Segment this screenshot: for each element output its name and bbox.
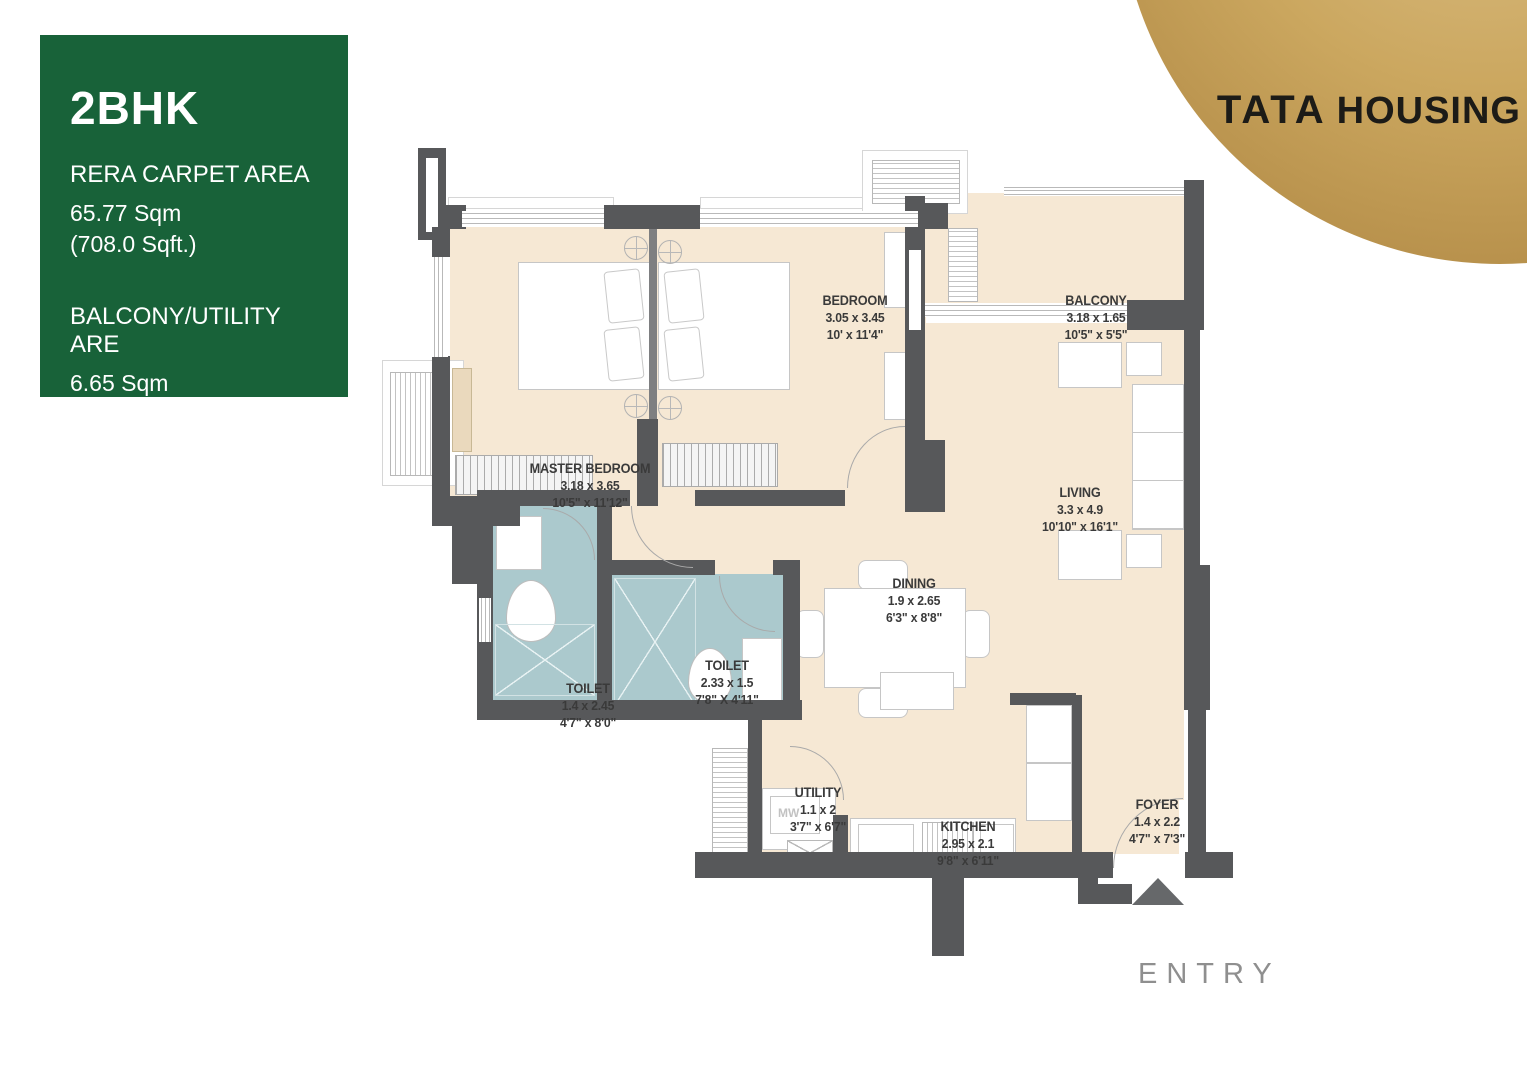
armchair xyxy=(1058,342,1122,388)
room-label-master-bedroom: MASTER BEDROOM 3.18 x 3.65 10'5" x 11'12… xyxy=(510,460,670,511)
window-sill xyxy=(448,197,614,209)
room-label-bedroom: BEDROOM 3.05 x 3.45 10' x 11'4" xyxy=(775,292,935,343)
wall-segment xyxy=(649,229,657,421)
ceiling-fan-icon xyxy=(624,236,648,260)
window-strip xyxy=(479,598,491,642)
pillow xyxy=(603,326,644,381)
room-label-living: LIVING 3.3 x 4.9 10'10" x 16'1" xyxy=(1000,484,1160,535)
entry-arrow-icon xyxy=(1132,878,1184,905)
window-strip xyxy=(462,211,604,227)
kitchen-cabinet xyxy=(1026,763,1072,821)
side-table xyxy=(1126,534,1162,568)
brand-housing-wordmark: HOUSING xyxy=(1337,90,1521,132)
plan-type-title: 2BHK xyxy=(70,81,328,135)
room-label-toilet-2: TOILET 2.33 x 1.5 7'8" X 4'11" xyxy=(647,657,807,708)
bedroom-wardrobe xyxy=(662,443,778,487)
side-table xyxy=(1126,342,1162,376)
ceiling-fan-icon xyxy=(658,396,682,420)
wall-segment xyxy=(432,227,450,257)
pillow xyxy=(603,268,644,323)
balcony-area-sqm: 6.65 Sqm xyxy=(70,369,328,398)
balcony-area-label: BALCONY/UTILITY ARE xyxy=(70,303,328,359)
wall-segment xyxy=(612,560,715,575)
window-strip xyxy=(432,257,448,357)
balcony-area-sqft: (72.0 Sqft.) xyxy=(70,399,328,428)
wall-segment xyxy=(432,356,450,504)
ceiling-fan-icon xyxy=(658,240,682,264)
room-label-foyer: FOYER 1.4 x 2.2 4'7" x 7'3" xyxy=(1077,796,1237,847)
carpet-area-sqm: 65.77 Sqm xyxy=(70,199,328,228)
brand-tata-wordmark: TATA xyxy=(1217,88,1327,132)
dresser xyxy=(452,368,472,452)
pillow xyxy=(663,268,704,323)
room-label-dining: DINING 1.9 x 2.65 6'3" x 8'8" xyxy=(834,575,994,626)
brand-logo: TATAHOUSING xyxy=(1217,88,1521,133)
room-label-toilet-1: TOILET 1.4 x 2.45 4'7" x 8'0" xyxy=(508,680,668,731)
room-label-kitchen: KITCHEN 2.95 x 2.1 9'8" x 6'11" xyxy=(888,818,1048,869)
wall-segment xyxy=(1184,565,1210,710)
wall-segment xyxy=(1098,884,1132,904)
room-label-balcony: BALCONY 3.18 x 1.65 10'5" x 5'5" xyxy=(1016,292,1176,343)
wall-segment xyxy=(1185,852,1233,878)
entry-label: ENTRY xyxy=(1138,958,1281,991)
carpet-area-label: RERA CARPET AREA xyxy=(70,161,328,189)
wall-segment xyxy=(932,878,964,956)
window-strip xyxy=(700,211,918,227)
floor-plan-page: TATAHOUSING 2BHK RERA CARPET AREA 65.77 … xyxy=(0,0,1527,1080)
room-label-utility: UTILITY 1.1 x 2 3'7" x 6'7" xyxy=(738,784,898,835)
dining-chair xyxy=(796,610,824,658)
armchair xyxy=(1058,530,1122,580)
wall-segment xyxy=(1010,693,1076,705)
wall-segment xyxy=(1184,323,1200,570)
wall-segment xyxy=(905,440,945,512)
wall-segment xyxy=(1078,864,1098,904)
pillow xyxy=(663,326,704,381)
carpet-area-sqft: (708.0 Sqft.) xyxy=(70,230,328,259)
wall-segment xyxy=(604,205,700,229)
wall-segment xyxy=(1184,180,1204,330)
wall-slot xyxy=(426,158,438,232)
balcony-ac-icon xyxy=(948,228,978,302)
refrigerator xyxy=(1026,705,1072,763)
wall-segment xyxy=(695,490,845,506)
console-table xyxy=(880,672,954,710)
info-panel: 2BHK RERA CARPET AREA 65.77 Sqm (708.0 S… xyxy=(40,35,348,397)
ceiling-fan-icon xyxy=(624,394,648,418)
window-strip xyxy=(1004,186,1184,196)
